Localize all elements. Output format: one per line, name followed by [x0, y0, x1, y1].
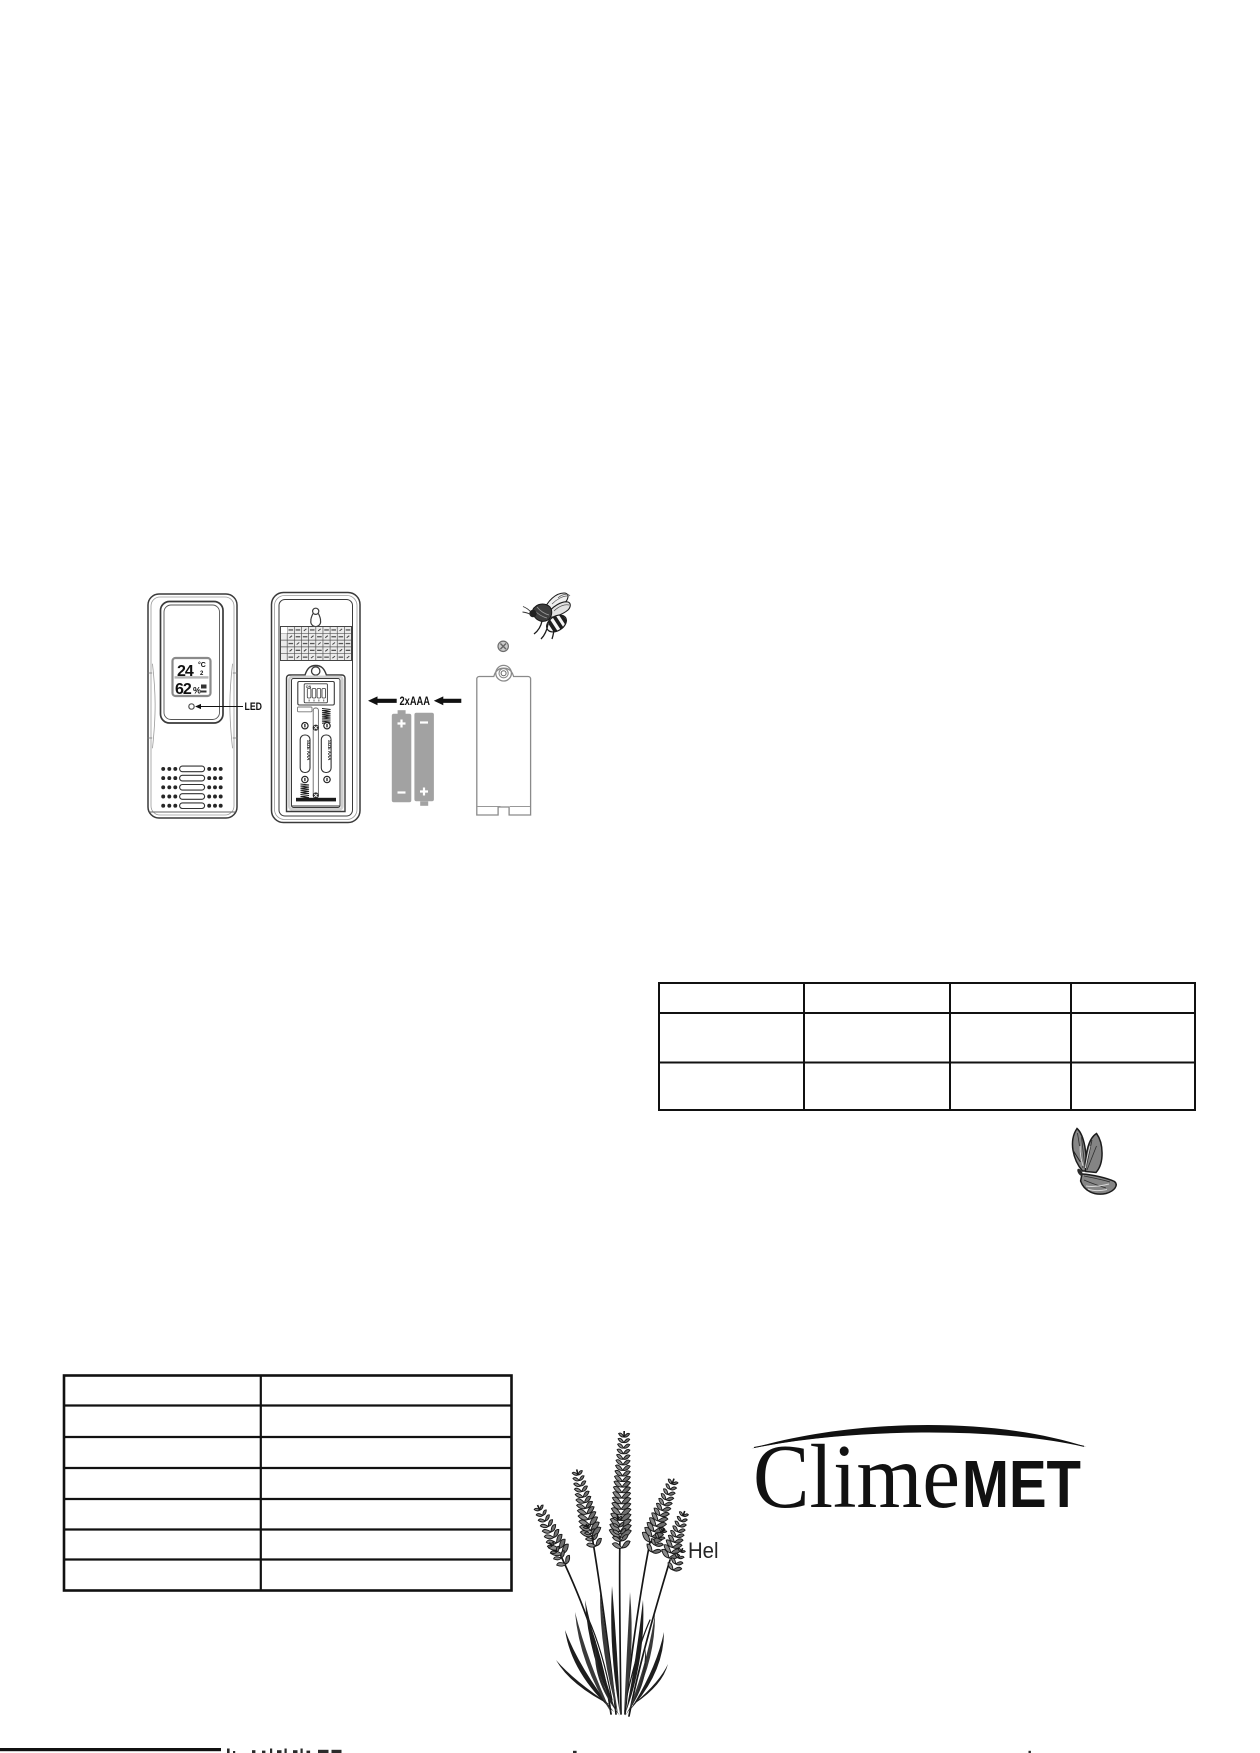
- svg-text:24: 24: [177, 663, 194, 680]
- svg-text:SIZE AAA: SIZE AAA: [306, 740, 311, 761]
- svg-text:Hel: Hel: [688, 1538, 719, 1563]
- svg-text:MET: MET: [962, 1448, 1081, 1522]
- svg-text:2xAAA: 2xAAA: [400, 694, 431, 708]
- svg-text:LED: LED: [245, 701, 263, 713]
- svg-text:62: 62: [175, 681, 192, 698]
- svg-text:%: %: [193, 686, 201, 696]
- svg-text:SIZE AAA: SIZE AAA: [327, 740, 332, 761]
- svg-text:°C: °C: [198, 661, 206, 669]
- svg-text:Clime: Clime: [753, 1426, 960, 1527]
